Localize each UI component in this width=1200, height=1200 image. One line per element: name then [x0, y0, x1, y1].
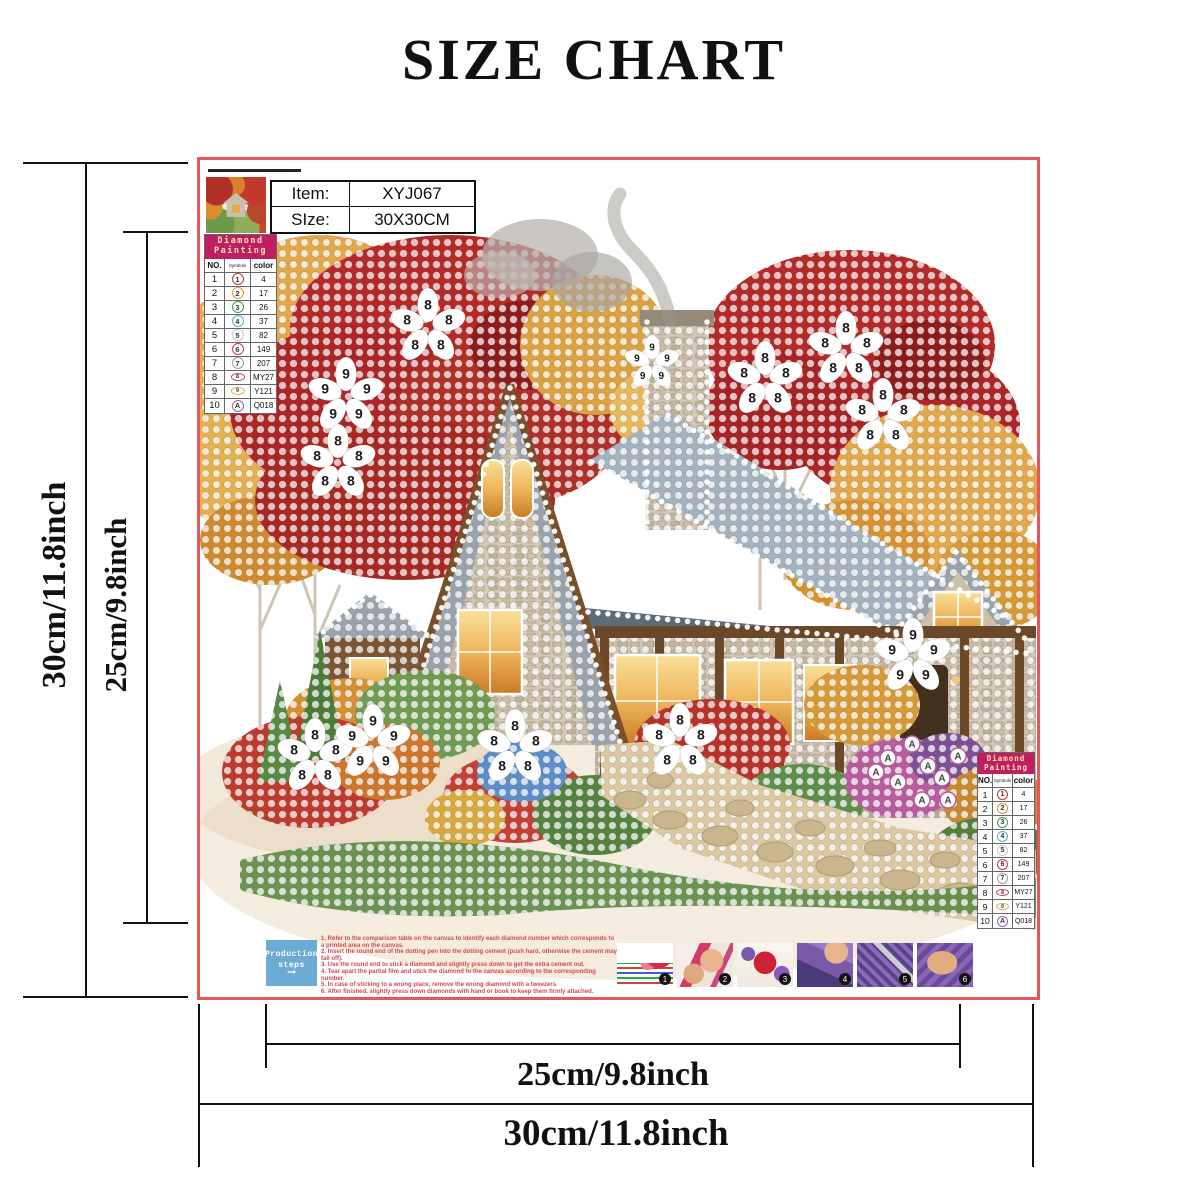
legend-column-headers: NO. Symbols color: [205, 259, 276, 273]
step-number-badge: 3: [779, 973, 791, 985]
dim-left-outer-label: 30cm/11.8inch: [36, 482, 74, 689]
svg-text:8: 8: [324, 766, 332, 782]
step-number-badge: 4: [839, 973, 851, 985]
symbol-5-icon: 5: [232, 329, 244, 341]
svg-text:9: 9: [930, 642, 938, 658]
legend-row: 66149: [205, 343, 276, 357]
step-photo: 1: [617, 943, 673, 987]
a-labeled-dot: A: [920, 758, 936, 774]
production-step: 6. After finished, slightly press down d…: [321, 989, 619, 996]
a-labeled-dot: A: [868, 764, 884, 780]
step-photo: 4: [797, 943, 853, 987]
symbol-5-icon: 5: [997, 845, 1008, 856]
svg-text:9: 9: [355, 405, 363, 421]
svg-text:9: 9: [658, 371, 664, 382]
svg-text:A: A: [954, 752, 961, 763]
a-labeled-dot: A: [904, 736, 920, 752]
svg-text:8: 8: [855, 359, 863, 375]
svg-text:8: 8: [761, 350, 769, 366]
symbol-6-icon: 6: [232, 343, 244, 355]
svg-text:9: 9: [342, 366, 350, 382]
svg-text:8: 8: [347, 472, 355, 488]
production-step: 3. Use the round end to stick a diamond …: [321, 962, 619, 969]
dim-left-inner-label: 25cm/9.8inch: [98, 518, 134, 693]
svg-text:A: A: [894, 778, 901, 789]
step-photo: 6: [917, 943, 973, 987]
legend-column-headers: NO. Symbols color: [978, 774, 1034, 788]
production-step: 1. Refer to the comparison table on the …: [321, 936, 619, 949]
dim-left-outer-cap-bottom: [23, 996, 188, 998]
dim-bottom-inner-label: 25cm/9.8inch: [265, 1056, 961, 1094]
legend-title: Diamond Painting: [205, 235, 276, 259]
size-value: 30X30CM: [350, 207, 474, 232]
product-canvas: 8888899999888889999988888888888888899999…: [197, 157, 1040, 1000]
step-number-badge: 5: [899, 973, 911, 985]
item-size-table: Item: XYJ067 SIze: 30X30CM: [270, 180, 476, 234]
symbol-8-icon: 8: [231, 373, 245, 381]
svg-text:9: 9: [888, 642, 896, 658]
legend-row: 77207: [205, 357, 276, 371]
svg-text:8: 8: [445, 312, 453, 328]
step-number-badge: 2: [719, 973, 731, 985]
legend-row: 66149: [978, 858, 1034, 872]
symbol-3-icon: 3: [997, 817, 1008, 828]
svg-text:8: 8: [697, 727, 705, 743]
symbol-7-icon: 7: [232, 357, 244, 369]
dim-bottom-outer-line: [198, 1103, 1034, 1105]
svg-text:A: A: [918, 796, 925, 807]
symbol-7-icon: 7: [997, 873, 1008, 884]
svg-text:8: 8: [524, 757, 532, 773]
svg-text:8: 8: [676, 712, 684, 728]
svg-text:8: 8: [298, 766, 306, 782]
symbol-10-icon: A: [232, 400, 244, 412]
symbol-1-icon: 1: [997, 789, 1008, 800]
svg-text:8: 8: [334, 433, 342, 449]
step-photo: 2: [677, 943, 733, 987]
svg-text:8: 8: [411, 336, 419, 352]
production-step: 5. In case of sticking to a wrong place,…: [321, 982, 619, 989]
dim-bottom-inner-line: [265, 1043, 961, 1045]
legend-row: 88MY27: [205, 371, 276, 385]
svg-text:8: 8: [311, 727, 319, 743]
svg-text:8: 8: [748, 389, 756, 405]
production-steps-text: 1. Refer to the comparison table on the …: [321, 936, 619, 995]
symbol-8-icon: 8: [996, 889, 1009, 896]
svg-text:8: 8: [313, 448, 321, 464]
a-labeled-dot: A: [940, 792, 956, 808]
legend-title: Diamond Painting: [978, 753, 1034, 774]
legend-row: 99Y121: [205, 385, 276, 399]
svg-text:8: 8: [511, 718, 519, 734]
legend-row: 77207: [978, 872, 1034, 886]
svg-text:9: 9: [356, 752, 364, 768]
legend-row: 5582: [205, 329, 276, 343]
svg-text:8: 8: [829, 359, 837, 375]
dim-bottom-outer-label: 30cm/11.8inch: [198, 1112, 1034, 1155]
svg-text:9: 9: [390, 728, 398, 744]
legend-row: 2217: [205, 287, 276, 301]
svg-text:8: 8: [332, 742, 340, 758]
svg-text:9: 9: [329, 405, 337, 421]
step-photo: 3: [737, 943, 793, 987]
svg-text:8: 8: [774, 389, 782, 405]
svg-text:9: 9: [640, 371, 646, 382]
svg-text:8: 8: [490, 733, 498, 749]
a-labeled-dot: A: [914, 792, 930, 808]
thumbnail-house-icon: [223, 193, 249, 217]
step-photo: 5: [857, 943, 913, 987]
size-chart-page: SIZE CHART 30cm/11.8inch 25cm/9.8inch 25…: [0, 0, 1200, 1200]
legend-row: 4437: [205, 315, 276, 329]
symbol-2-icon: 2: [232, 287, 244, 299]
dim-left-inner-cap-top: [123, 231, 188, 233]
legend-row: 4437: [978, 830, 1034, 844]
svg-text:8: 8: [842, 320, 850, 336]
a-labeled-dot: A: [880, 750, 896, 766]
step-number-badge: 1: [659, 973, 671, 985]
legend-row: 88MY27: [978, 886, 1034, 900]
svg-text:A: A: [938, 774, 945, 785]
symbol-4-icon: 4: [232, 315, 244, 327]
a-labeled-dot: A: [890, 774, 906, 790]
symbol-9-icon: 9: [996, 903, 1009, 910]
svg-text:8: 8: [892, 426, 900, 442]
svg-text:8: 8: [879, 387, 887, 403]
legend-row: 114: [978, 788, 1034, 802]
svg-text:8: 8: [290, 742, 298, 758]
svg-text:9: 9: [321, 381, 329, 397]
svg-text:9: 9: [909, 627, 917, 643]
svg-text:A: A: [944, 796, 951, 807]
svg-text:8: 8: [821, 335, 829, 351]
product-thumbnail: [206, 177, 266, 233]
production-step: 2. Insert the round end of the dotting p…: [321, 949, 619, 962]
svg-text:8: 8: [498, 757, 506, 773]
production-steps-box: Production steps ⟶: [266, 940, 317, 986]
legend-row: 114: [205, 273, 276, 287]
dim-left-inner-cap-bottom: [123, 922, 188, 924]
svg-text:8: 8: [863, 335, 871, 351]
svg-text:8: 8: [866, 426, 874, 442]
legend-row: 3326: [978, 816, 1034, 830]
legend-row: 3326: [205, 301, 276, 315]
legend-row: 5582: [978, 844, 1034, 858]
svg-text:8: 8: [689, 751, 697, 767]
item-value: XYJ067: [350, 182, 474, 207]
legend-table-left: Diamond Painting NO. Symbols color 11422…: [204, 234, 277, 414]
svg-text:9: 9: [922, 666, 930, 682]
symbol-4-icon: 4: [997, 831, 1008, 842]
a-labeled-dot: A: [950, 748, 966, 764]
page-title: SIZE CHART: [0, 26, 1188, 93]
dim-left-outer-cap-top: [23, 162, 188, 164]
svg-text:8: 8: [403, 312, 411, 328]
svg-text:8: 8: [424, 297, 432, 313]
cottage-scene-art: 8888899999888889999988888888888888899999…: [200, 160, 1037, 997]
legend-table-right: Diamond Painting NO. Symbols color 11422…: [977, 752, 1035, 929]
symbol-3-icon: 3: [232, 301, 244, 313]
production-step: 4. Tear apart the partial film and stick…: [321, 969, 619, 982]
step-photos: 1 2 3 4 5 6: [617, 943, 973, 987]
svg-text:8: 8: [321, 472, 329, 488]
a-labeled-dot: A: [934, 770, 950, 786]
legend-row: 99Y121: [978, 900, 1034, 914]
arrow-right-icon: ⟶: [288, 971, 295, 976]
item-label: Item:: [272, 182, 350, 207]
svg-text:9: 9: [369, 713, 377, 729]
svg-text:8: 8: [858, 402, 866, 418]
svg-text:9: 9: [649, 342, 655, 353]
svg-text:A: A: [884, 754, 891, 765]
legend-row: 2217: [978, 802, 1034, 816]
svg-text:8: 8: [782, 365, 790, 381]
symbol-6-icon: 6: [997, 859, 1008, 870]
symbol-9-icon: 9: [231, 387, 245, 395]
svg-text:8: 8: [655, 727, 663, 743]
svg-text:9: 9: [664, 353, 670, 364]
svg-text:8: 8: [663, 751, 671, 767]
legend-row: 10AQ018: [205, 399, 276, 413]
svg-text:8: 8: [900, 402, 908, 418]
size-label: SIze:: [272, 207, 350, 232]
svg-text:9: 9: [634, 353, 640, 364]
dim-left-outer-line: [85, 162, 87, 998]
canvas-top-mark: [208, 169, 301, 172]
svg-text:9: 9: [382, 752, 390, 768]
svg-text:9: 9: [348, 728, 356, 744]
step-number-badge: 6: [959, 973, 971, 985]
svg-text:8: 8: [532, 733, 540, 749]
svg-text:8: 8: [437, 336, 445, 352]
symbol-10-icon: A: [997, 916, 1008, 927]
svg-text:9: 9: [896, 666, 904, 682]
svg-text:A: A: [924, 762, 931, 773]
dim-left-inner-line: [146, 231, 148, 924]
legend-row: 10AQ018: [978, 914, 1034, 928]
symbol-2-icon: 2: [997, 803, 1008, 814]
svg-text:A: A: [872, 768, 879, 779]
svg-text:8: 8: [740, 365, 748, 381]
symbol-1-icon: 1: [232, 273, 244, 285]
svg-text:8: 8: [355, 448, 363, 464]
svg-text:A: A: [908, 740, 915, 751]
svg-text:9: 9: [363, 381, 371, 397]
